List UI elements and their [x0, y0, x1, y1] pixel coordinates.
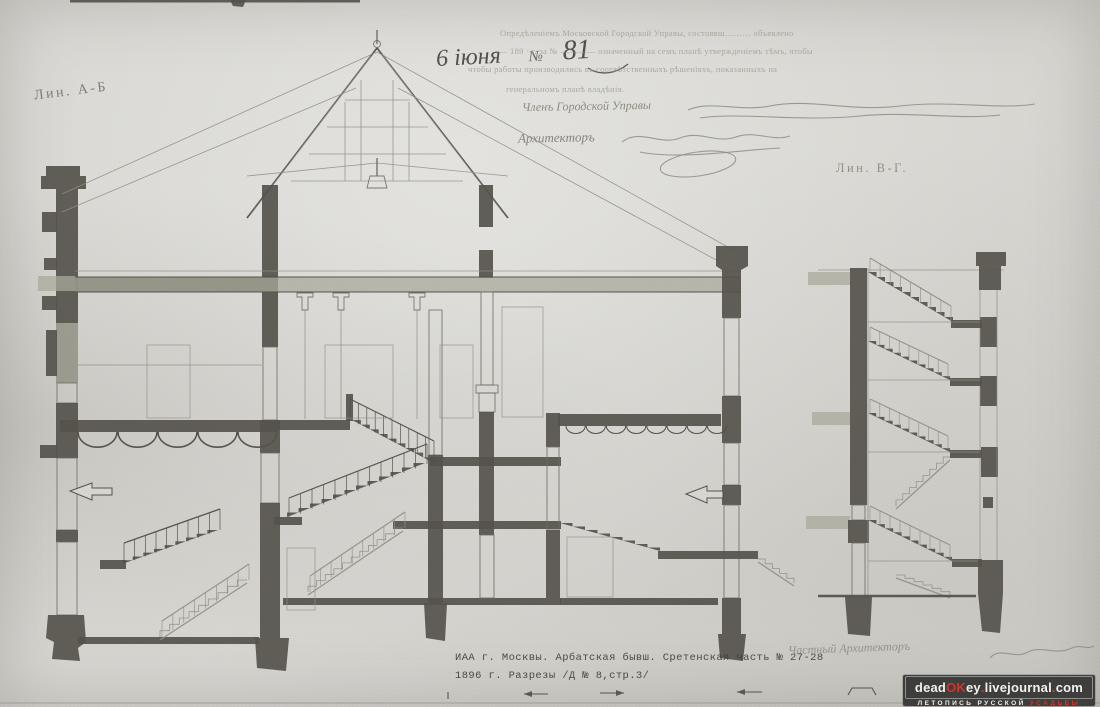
council-member-title: Членъ Городской Управы	[522, 98, 651, 115]
rect-shape	[983, 497, 993, 508]
attic-post	[479, 185, 493, 227]
watermark: deadOKey.livejournal.com летопись русско…	[903, 675, 1095, 706]
rect-shape	[980, 317, 997, 347]
rect-shape	[75, 277, 278, 292]
poly-shape	[616, 690, 624, 696]
rect-shape	[852, 505, 865, 520]
rect-shape	[41, 176, 86, 189]
rect-shape	[951, 320, 982, 328]
column-capital	[476, 385, 498, 393]
poly-shape	[524, 691, 532, 697]
rect-shape	[263, 347, 277, 420]
poly-shape	[255, 638, 289, 671]
basement-floor	[78, 637, 259, 644]
rect-shape	[274, 517, 302, 525]
12	[289, 444, 427, 518]
stamp-text-line: …— 189 · г. за № ———— означенный на семъ…	[490, 46, 813, 56]
section-label-right: Лин. В-Г.	[836, 161, 908, 176]
rect-shape	[848, 520, 869, 543]
watermark-url: deadOKey.livejournal.com	[905, 676, 1093, 699]
watermark-tagline-red: усадьбы	[1030, 700, 1081, 707]
8	[566, 426, 727, 433]
entresol-floor	[430, 457, 561, 466]
central-wall	[260, 420, 280, 453]
rect-shape	[722, 598, 741, 634]
left-facade-wall	[56, 189, 78, 323]
stairwell-left-wall	[850, 268, 867, 505]
poly-shape	[737, 689, 745, 695]
rect-shape	[808, 272, 850, 285]
rect-shape	[722, 485, 741, 505]
photo-edge-mark	[70, 0, 360, 3]
cap-shape	[297, 293, 313, 310]
9	[160, 580, 247, 640]
rect-shape	[100, 560, 126, 569]
poly-shape	[845, 597, 872, 636]
pline-shape	[848, 688, 876, 695]
8	[870, 258, 951, 320]
rect-shape	[57, 458, 77, 530]
stamp-text-line: чтобы работы производились въ соотвѣтств…	[468, 64, 777, 74]
rect-shape	[980, 376, 997, 406]
archive-caption-line1: ИАА г. Москвы. Арбатская бывш. Сретенска…	[455, 652, 824, 664]
rect-shape	[278, 420, 350, 430]
watermark-part: com	[1056, 680, 1083, 695]
8	[870, 327, 948, 378]
photo-edge-blob	[230, 0, 246, 7]
signature-flourish	[990, 646, 1094, 658]
watermark-part: dead	[915, 680, 946, 695]
door-outline	[325, 345, 393, 418]
archival-drawing-photo: Лин. А-Б Лин. В-Г. 6 іюня№81 Опредѣленіе…	[0, 0, 1100, 707]
rect-shape	[950, 450, 982, 458]
newel-post	[346, 394, 353, 421]
rect-shape	[57, 542, 77, 615]
watermark-tagline-white: летопись русской	[918, 700, 1026, 707]
6	[896, 575, 950, 598]
rect-shape	[546, 530, 560, 598]
rect-shape	[261, 453, 279, 503]
rect-shape	[56, 530, 78, 542]
rect-shape	[952, 559, 982, 567]
door-outline	[147, 345, 190, 418]
rect-shape	[479, 393, 495, 412]
attic-post	[262, 185, 278, 278]
rect-shape	[852, 543, 865, 597]
rect-shape	[44, 258, 57, 270]
rect-shape	[812, 412, 850, 425]
level-arrow	[686, 486, 723, 503]
signature-flourish	[622, 135, 790, 142]
8	[870, 506, 950, 559]
rect-shape	[262, 292, 278, 347]
10	[868, 272, 953, 325]
pendant-lamp	[367, 176, 387, 188]
rect-shape	[479, 250, 493, 278]
mid-floor	[393, 521, 561, 529]
rect-shape	[950, 378, 982, 386]
rect-shape	[724, 318, 739, 396]
path-shape	[640, 148, 780, 155]
line-shape	[62, 88, 356, 212]
rect-shape	[57, 383, 77, 403]
scallop-ceiling	[558, 414, 721, 426]
door-outline	[440, 345, 473, 418]
arcade-ceiling	[60, 420, 278, 432]
5	[78, 432, 277, 447]
5	[758, 559, 794, 586]
watermark-part: OK	[946, 680, 966, 695]
rect-shape	[40, 445, 57, 458]
rect-shape	[546, 413, 560, 447]
stamp-text-line: генеральномъ планѣ владѣнія.	[506, 84, 624, 94]
10	[350, 399, 434, 462]
roof-tie	[62, 52, 377, 194]
stamp-text-line: Опредѣленіемъ Московской Городской Управ…	[500, 28, 794, 38]
stair-pillar	[428, 455, 443, 603]
11	[308, 528, 403, 595]
stamp-oval	[659, 147, 738, 181]
rect-shape	[46, 330, 57, 376]
8	[896, 457, 950, 509]
right-wall	[722, 270, 741, 318]
rect-shape	[42, 296, 57, 310]
rect-shape	[724, 443, 739, 485]
watermark-tagline: летопись русской усадьбы	[903, 699, 1095, 707]
right-wall-cornice	[716, 246, 748, 270]
poly-shape	[424, 603, 447, 641]
basement-floor	[560, 598, 718, 605]
door-outline	[502, 307, 543, 417]
8	[162, 564, 249, 637]
architect-title: Архитекторъ	[518, 129, 595, 146]
8	[560, 523, 660, 554]
9	[124, 509, 220, 564]
poly-shape	[978, 593, 1003, 633]
column-shaft	[479, 412, 494, 535]
rect-shape	[480, 535, 494, 598]
cap-shape	[409, 293, 425, 310]
archive-caption-line2: 1896 г. Разрезы /Д № 8,стр.3/	[455, 670, 649, 682]
watermark-part: ey	[966, 680, 981, 695]
rect-shape	[38, 276, 76, 291]
watermark-part: livejournal	[985, 680, 1052, 695]
rect-shape	[42, 212, 57, 232]
rect-shape	[981, 447, 998, 477]
rect-shape	[979, 266, 1001, 290]
rect-shape	[806, 516, 850, 529]
rect-shape	[481, 292, 493, 385]
door-outline	[567, 537, 613, 597]
stairwell-right-cornice	[976, 252, 1006, 266]
path-shape	[700, 114, 1000, 118]
rect-shape	[722, 396, 741, 443]
level-arrow	[70, 483, 112, 500]
rect-shape	[56, 323, 78, 383]
signature-flourish	[688, 103, 1035, 110]
line-shape	[377, 52, 735, 251]
basement-floor	[283, 598, 561, 605]
cap-shape	[333, 293, 349, 310]
9	[122, 530, 218, 567]
8	[870, 399, 948, 450]
rect-shape	[658, 551, 758, 559]
left-wall-cap	[46, 166, 80, 176]
